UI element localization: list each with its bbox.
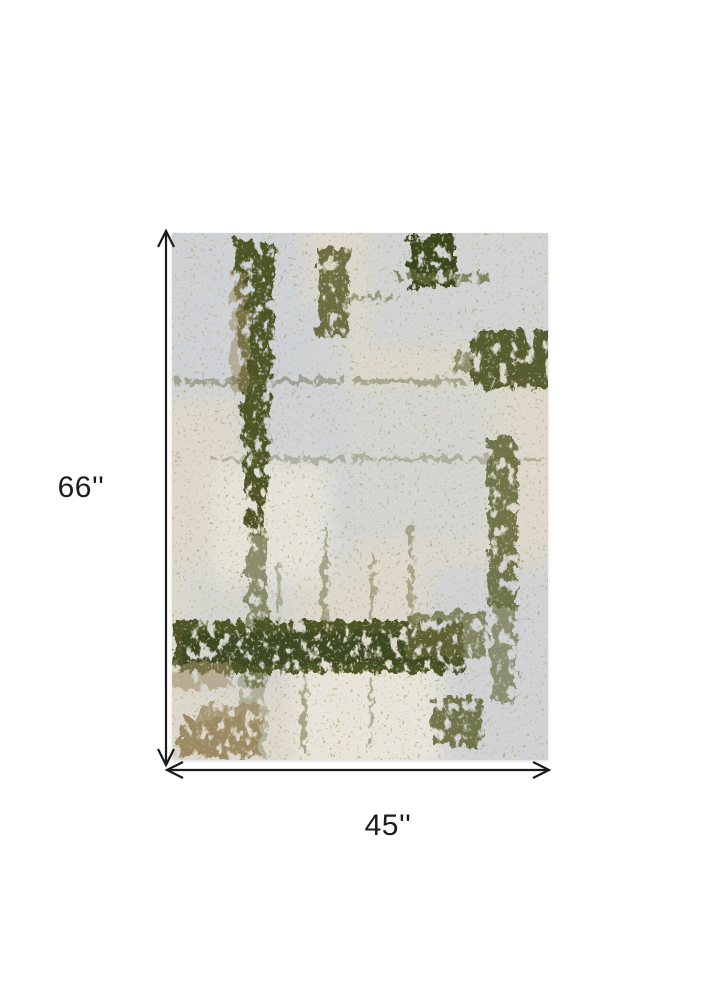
rug-grain-olive [172, 233, 548, 760]
width-dimension-arrow [158, 755, 558, 785]
rug-image [172, 233, 548, 760]
dimension-diagram: 66'' 45'' [0, 0, 716, 1000]
rug-artwork [172, 233, 548, 760]
height-dimension-arrow [150, 228, 182, 772]
width-dimension-label: 45'' [338, 809, 438, 843]
height-dimension-label: 66'' [37, 471, 125, 505]
